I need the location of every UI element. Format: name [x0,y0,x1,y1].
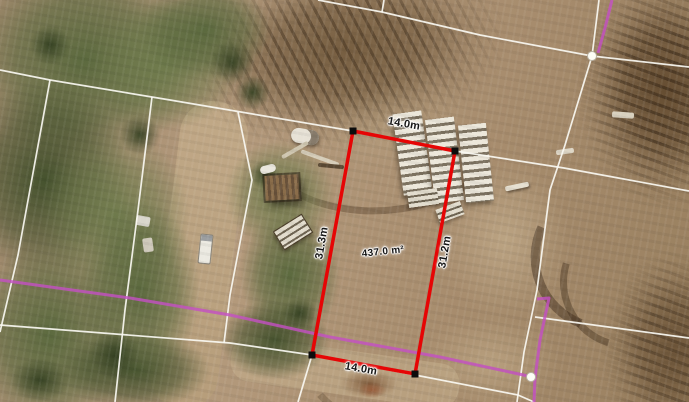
boundary-line [298,355,312,402]
survey-node [527,373,536,382]
parcel-corner-marker [350,128,357,135]
boundary-line [517,0,599,402]
survey-node [588,52,597,61]
utility-line [534,298,549,402]
utility-line [0,280,528,376]
parcel-corner-marker [412,371,419,378]
map-viewport[interactable]: 14.0m 14.0m 31.3m 31.2m 437.0 m² [0,0,689,402]
boundary-line [535,317,689,338]
utility-line [598,0,612,53]
cadastre-overlay-svg [0,0,689,402]
boundary-line [318,0,689,67]
boundary-line [115,97,152,402]
boundary-line [382,0,384,12]
boundary-line [224,112,252,343]
parcel-corner-marker [309,352,316,359]
boundary-line [0,80,50,332]
parcel-corner-marker [452,148,459,155]
boundary-line [0,325,534,402]
